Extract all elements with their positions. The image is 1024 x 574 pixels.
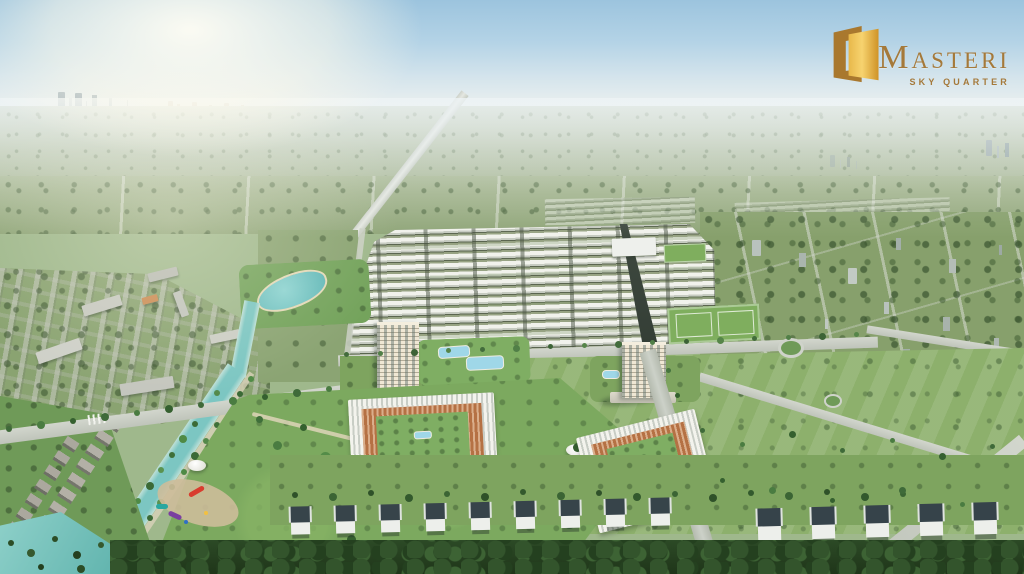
play-equipment [184,520,188,524]
swimming-pool [438,345,471,359]
masteri-door-icon [833,26,881,89]
palm-trees-canal-left [214,390,220,396]
sun-glow [0,0,500,200]
logo-text: M ASTERI SKY QUARTER [878,26,1010,87]
white-canopy [188,460,206,471]
brand-tagline: SKY QUARTER [909,77,1010,87]
sports-courts [667,304,761,345]
brand-wordmark: M ASTERI [878,41,1010,75]
street-trees-arterial [6,426,12,432]
brand-name-rest: ASTERI [912,49,1011,72]
school-field [664,243,707,262]
swimming-pool [602,370,620,379]
aerial-masterplan-rendering: M ASTERI SKY QUARTER [0,0,1024,574]
distant-towers-far-right [986,140,992,156]
clubhouse-building [612,237,657,257]
street-trees-villas [292,492,298,498]
brand-initial: M [878,41,911,75]
court-markings [717,310,754,336]
boulevard-trees [666,368,671,373]
play-equipment [204,511,208,515]
highrise-tower-left [377,322,419,397]
roundabout [778,338,804,358]
street-trees-front-road [344,352,349,357]
swimming-pool [466,355,505,371]
scattered-field-trees [700,428,705,433]
hazy-housing-cluster [545,197,695,226]
suburb-buildings [752,240,761,256]
court-markings [675,312,712,338]
corner-trees [8,540,14,546]
foreground-tree-line [110,540,1024,574]
distant-towers-right [830,155,835,167]
teal-slide [156,504,168,509]
roundabout-small [824,394,842,408]
masteri-logo: M ASTERI SKY QUARTER [833,26,1010,89]
palm-trees-canal-right [248,376,254,382]
courtyard-pool [413,431,431,440]
park-trees [256,416,263,423]
